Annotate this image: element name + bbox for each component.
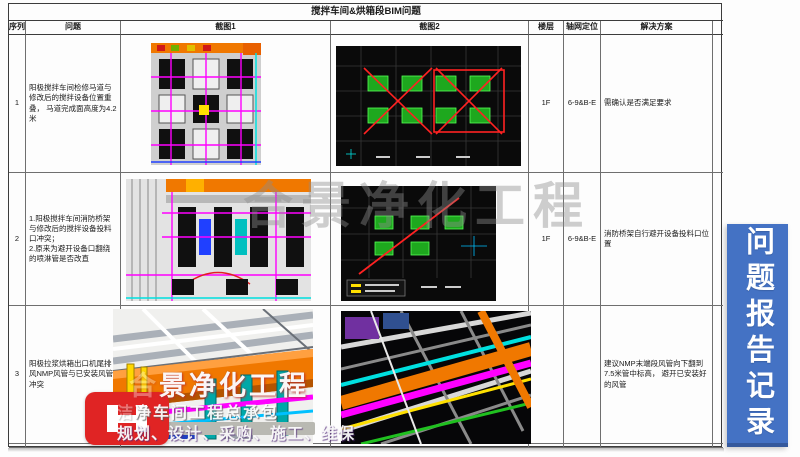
row2-seq: 2 bbox=[9, 173, 26, 306]
row1-empty bbox=[713, 35, 723, 173]
col-header-problem: 问题 bbox=[26, 21, 121, 35]
col-header-shot1: 截图1 bbox=[121, 21, 331, 35]
col-header-floor: 楼层 bbox=[529, 21, 564, 35]
col-header-solution: 解决方案 bbox=[601, 21, 713, 35]
row2-solution: 消防桥架自行避开设备投料口位置 bbox=[601, 173, 713, 306]
row2-empty bbox=[713, 173, 723, 306]
col-header-axis: 轴网定位 bbox=[564, 21, 601, 35]
banner-label: 问题报告记录 bbox=[737, 226, 779, 442]
col-header-empty bbox=[713, 21, 723, 35]
cad-dark-plan-marked-image bbox=[336, 46, 521, 166]
row1-seq: 1 bbox=[9, 35, 26, 173]
problem-report-banner: 问题报告记录 bbox=[727, 224, 788, 447]
row3-floor bbox=[529, 306, 564, 444]
logo-title-text: 合景净化工程 bbox=[129, 364, 309, 403]
col-header-shot2: 截图2 bbox=[331, 21, 529, 35]
row3-solution: 建议NMP末端段风管向下翻到7.5米管中标高， 避开已安装好的风管 bbox=[601, 306, 713, 444]
row3-axis bbox=[564, 306, 601, 444]
logo-services-text: 规划、设计、采购、施工、维保 bbox=[117, 420, 355, 444]
logo-title-faint-char: 合 bbox=[129, 371, 159, 401]
logo-title-main: 景净化工程 bbox=[159, 371, 309, 401]
bim-3d-dark-view-image bbox=[341, 311, 531, 444]
row1-floor: 1F bbox=[529, 35, 564, 173]
page-shadow bbox=[8, 448, 724, 452]
col-header-seq: 序列 bbox=[9, 21, 26, 35]
row1-shot1-cell bbox=[121, 35, 331, 173]
row1-shot2-cell bbox=[331, 35, 529, 173]
table-title: 搅拌车间&烘箱段BIM问题 bbox=[9, 4, 723, 21]
cad-plan-colored-image bbox=[151, 43, 261, 165]
row3-shot2-cell bbox=[331, 306, 529, 444]
row1-axis: 6-9&B-E bbox=[564, 35, 601, 173]
company-watermark: 合景净化工程 bbox=[243, 166, 591, 238]
row1-solution: 需确认是否满足要求 bbox=[601, 35, 713, 173]
row3-seq: 3 bbox=[9, 306, 26, 444]
row1-problem: 阳极搅拌车间检修马道与修改后的搅拌设备位置重叠， 马道完成面高度为4.2米 bbox=[26, 35, 121, 173]
row3-empty bbox=[713, 306, 723, 444]
row2-problem: 1.阳极搅拌车间消防桥架与修改后的搅拌设备投料口冲突； 2.原来为避开设备口翻绕… bbox=[26, 173, 121, 306]
